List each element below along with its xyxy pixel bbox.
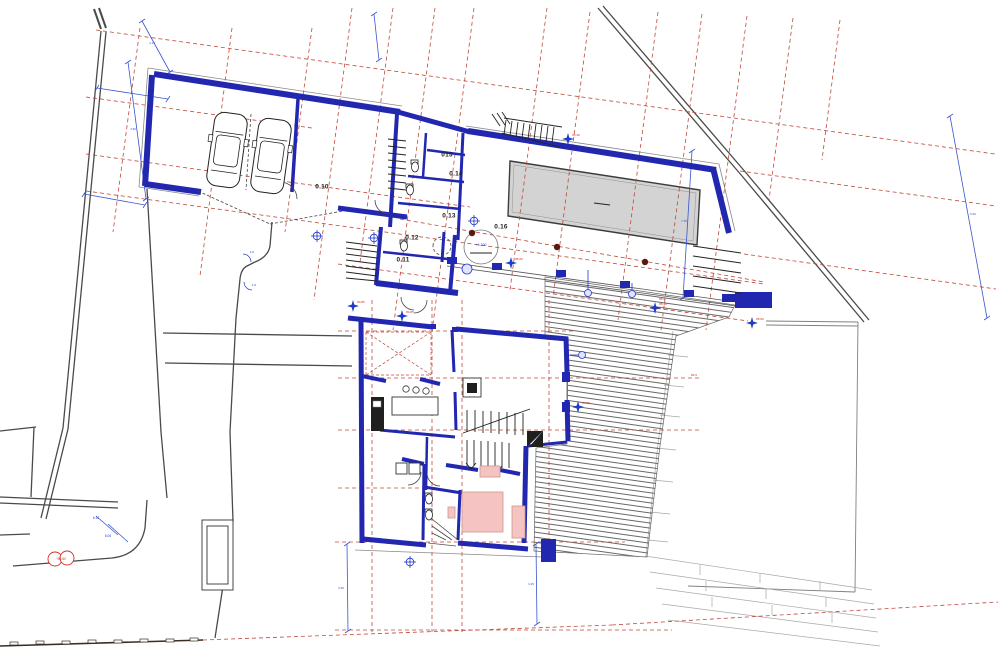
svg-text:1.0: 1.0 [250,250,255,254]
svg-text:3.25: 3.25 [528,582,534,586]
sink-white [373,401,381,407]
svg-text:85.00: 85.00 [515,257,523,261]
floorplan-sheet: +4.200+84.606.106.061.01.085.3084.8584.8… [0,0,1000,667]
room-label-0-10: 0.10 [315,184,328,191]
svg-text:9.90: 9.90 [970,212,976,216]
plan-drawing: +4.200+84.606.106.061.01.085.3084.8584.8… [0,0,1000,667]
svg-text:85.2: 85.2 [659,297,665,301]
site-boundary [0,6,869,535]
svg-text:84.85: 84.85 [406,310,414,314]
svg-text:84.85: 84.85 [357,300,365,304]
svg-text:7.35: 7.35 [681,219,687,223]
void-x-red [366,332,431,375]
road-dashes [10,638,198,645]
svg-text:1.0: 1.0 [252,283,257,287]
svg-text:4.15: 4.15 [149,41,155,45]
svg-text:6.10: 6.10 [93,516,99,520]
deck-hatch [534,277,735,557]
room-label-0-13: 0.13 [442,213,455,220]
svg-text:85.60: 85.60 [756,317,764,321]
svg-text:+4.200: +4.200 [476,243,487,247]
svg-text:84.9: 84.9 [691,373,697,377]
pool [508,161,700,245]
svg-text:4.50: 4.50 [130,127,136,131]
svg-text:3.50: 3.50 [338,586,344,590]
detail-rects [202,160,481,590]
room-label-0-16: 0.16 [494,224,507,231]
room-label-0-14: 0.14 [449,171,462,178]
lawn-outline [688,321,858,592]
svg-text:+84.60: +84.60 [56,557,66,561]
svg-text:85.10: 85.10 [659,302,667,306]
level-circle [464,230,498,264]
contour-lines [645,331,880,646]
room-label-015: 015 [441,152,452,159]
room-label-0-12: 0.12 [405,235,418,242]
room-label-0-11: 0.11 [396,257,409,264]
burners [403,386,429,394]
radius-arcs [243,254,252,290]
svg-text:84.95: 84.95 [582,401,590,405]
door-arcs [280,182,458,540]
svg-text:85.30: 85.30 [572,133,580,137]
svg-text:6.06: 6.06 [105,534,111,538]
cars [202,111,296,196]
